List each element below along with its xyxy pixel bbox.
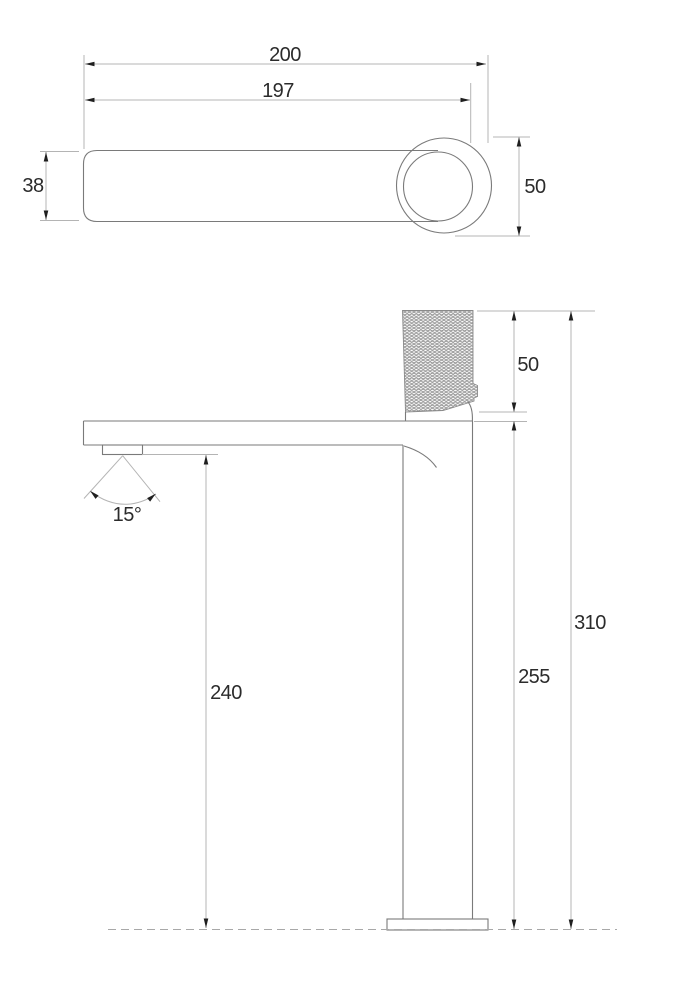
arrow-38-up <box>44 152 49 162</box>
dim-label-aerator-height: 240 <box>210 682 242 704</box>
top-view: 200 197 38 50 <box>22 44 546 236</box>
dim-label-spout-height: 255 <box>518 666 550 688</box>
side-view-arrows <box>88 311 573 929</box>
arrow-50tv-down <box>517 227 522 237</box>
arrow-50side-down <box>512 403 517 413</box>
spray-angle-line-left <box>84 456 123 499</box>
cartridge-circle-outline <box>404 152 473 221</box>
arrow-240-down <box>204 919 209 929</box>
dim-label-overall-length: 200 <box>269 44 301 66</box>
dim-label-spout-length: 197 <box>262 80 294 102</box>
arrow-310-down <box>569 920 574 930</box>
knurled-handle <box>403 311 478 413</box>
arrow-310-up <box>569 311 574 321</box>
arrow-angle-left <box>88 489 98 499</box>
arrow-200-right <box>477 62 487 67</box>
arrow-197-left <box>85 98 95 103</box>
side-view-dimension-lines <box>84 311 595 929</box>
arrow-38-down <box>44 211 49 221</box>
dim-label-spout-width: 38 <box>22 175 44 197</box>
dim-label-handle-height: 50 <box>517 354 539 376</box>
side-view-object-lines <box>84 402 489 931</box>
arrow-240-up <box>204 455 209 465</box>
side-view: 50 310 255 240 15° <box>84 311 618 931</box>
arrow-255-down <box>512 920 517 930</box>
arrow-197-right <box>461 98 471 103</box>
arrow-50side-up <box>512 311 517 321</box>
top-view-object-lines <box>84 138 492 233</box>
spout-top-view-outline <box>84 151 439 222</box>
base-flange <box>387 919 488 930</box>
spout-body-fillet-arc <box>404 446 437 468</box>
drawing-canvas: 200 197 38 50 <box>0 0 678 984</box>
handle-neck-right-curve <box>468 402 473 422</box>
dim-label-handle-diameter: 50 <box>524 176 546 198</box>
technical-drawing-page: 200 197 38 50 <box>0 0 678 984</box>
arrow-255-up <box>512 421 517 431</box>
aerator <box>103 445 143 455</box>
arrow-50tv-up <box>517 137 522 147</box>
dim-label-spray-angle: 15° <box>113 504 142 526</box>
dim-label-total-height: 310 <box>574 612 606 634</box>
spray-angle-arc <box>91 492 156 505</box>
arrow-200-left <box>85 62 95 67</box>
